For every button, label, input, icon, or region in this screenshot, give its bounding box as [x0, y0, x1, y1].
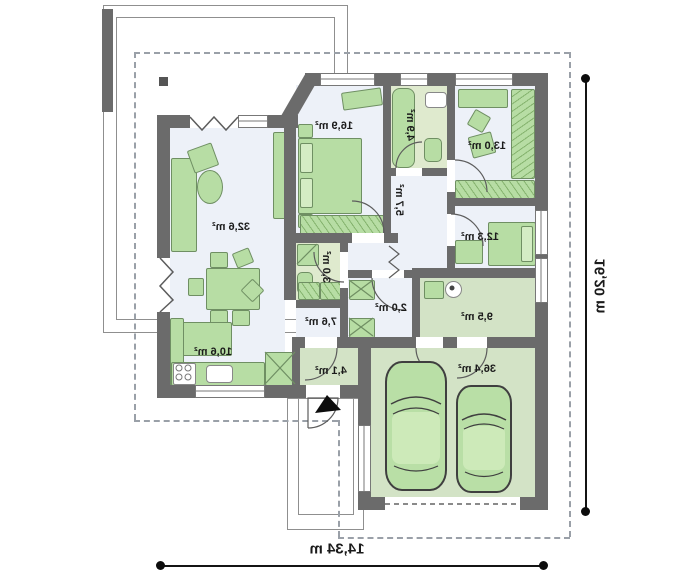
area-label-kitchen: 10,6 m² — [194, 346, 232, 358]
area-label-utility: 9,5 m² — [461, 311, 493, 323]
water-heater-dot — [450, 286, 455, 291]
area-label-hallway: 7,6 m² — [305, 316, 337, 328]
area-label-living: 32,6 m² — [212, 221, 250, 233]
dimension-label-width: 14,34 m — [309, 541, 364, 558]
door-swing-arc — [396, 142, 422, 168]
stove-burners — [176, 365, 191, 380]
area-label-bedroom1: 16,9 m² — [315, 120, 353, 132]
area-label-entry: 4,1 m² — [315, 365, 347, 377]
folding-door-icon — [190, 117, 238, 130]
area-label-wc: 3,0 m² — [320, 251, 332, 283]
dimension-label-height: 16,20 m — [592, 258, 609, 313]
area-label-bedroom2: 13,0 m² — [468, 140, 506, 152]
area-label-bedroom3: 12,3 m² — [461, 231, 499, 243]
door-swing-arc — [455, 160, 487, 192]
car — [386, 362, 446, 490]
area-label-garage: 36,4 m² — [458, 363, 496, 375]
floor-plan: 32,6 m² 16,9 m² 4,9 m² 13,0 m² 5,7 m² 12… — [0, 0, 700, 575]
area-label-corridor: 5,7 m² — [393, 184, 405, 216]
car — [457, 386, 511, 492]
wall-chamfer — [285, 78, 311, 123]
area-label-closet: 2,0 m² — [375, 302, 407, 314]
door-swing-arc — [352, 201, 384, 233]
area-label-bathroom: 4,9 m² — [404, 109, 416, 141]
folding-door-icon — [389, 246, 399, 278]
folding-door-icon — [160, 258, 173, 312]
